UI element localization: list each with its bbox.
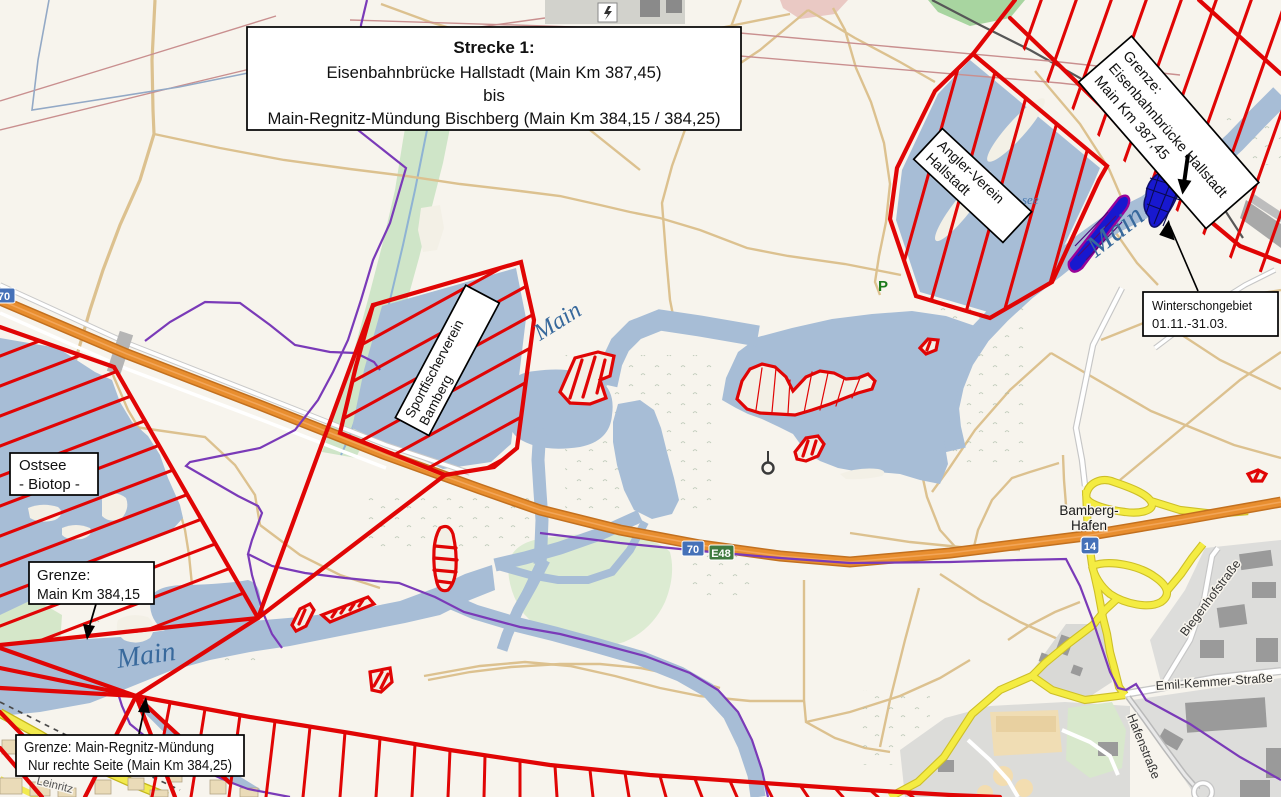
svg-text:E48: E48 bbox=[711, 548, 731, 560]
svg-text:Ostsee: Ostsee bbox=[19, 457, 67, 474]
svg-text:P: P bbox=[878, 278, 888, 295]
svg-text:Grenze: Main-Regnitz-Mündung: Grenze: Main-Regnitz-Mündung bbox=[24, 739, 214, 756]
svg-text:70: 70 bbox=[687, 544, 699, 556]
svg-text:Strecke 1:: Strecke 1: bbox=[453, 38, 534, 57]
svg-text:Eisenbahnbrücke Hallstadt (Mai: Eisenbahnbrücke Hallstadt (Main Km 387,4… bbox=[327, 63, 662, 82]
svg-text:Main-Regnitz-Mündung Bischberg: Main-Regnitz-Mündung Bischberg (Main Km … bbox=[268, 109, 721, 128]
svg-text:Bamberg-: Bamberg- bbox=[1059, 503, 1118, 518]
svg-text:Grenze:: Grenze: bbox=[37, 567, 90, 584]
svg-text:14: 14 bbox=[1084, 541, 1097, 553]
svg-text:Main Km 384,15: Main Km 384,15 bbox=[37, 586, 140, 603]
svg-text:- Biotop -: - Biotop - bbox=[19, 476, 80, 493]
svg-text:bis: bis bbox=[483, 86, 505, 105]
svg-text:Nur rechte Seite (Main Km 384,: Nur rechte Seite (Main Km 384,25) bbox=[28, 757, 232, 774]
svg-text:Winterschongebiet: Winterschongebiet bbox=[1152, 298, 1252, 313]
svg-text:Hafen: Hafen bbox=[1071, 518, 1107, 533]
svg-text:01.11.-31.03.: 01.11.-31.03. bbox=[1152, 316, 1228, 331]
svg-text:70: 70 bbox=[0, 291, 10, 303]
